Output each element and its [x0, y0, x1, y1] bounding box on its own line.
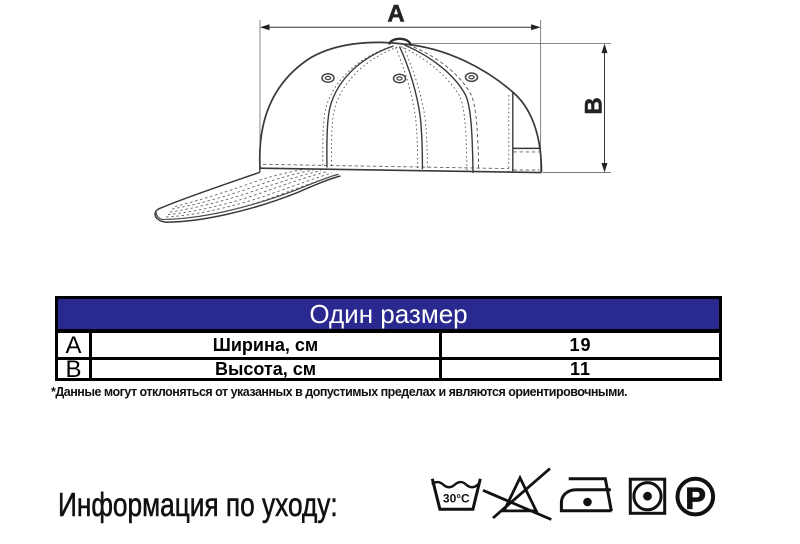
- svg-text:B: B: [580, 97, 607, 114]
- svg-text:30°C: 30°C: [443, 491, 470, 505]
- svg-text:A: A: [387, 0, 404, 27]
- svg-text:P: P: [686, 482, 706, 515]
